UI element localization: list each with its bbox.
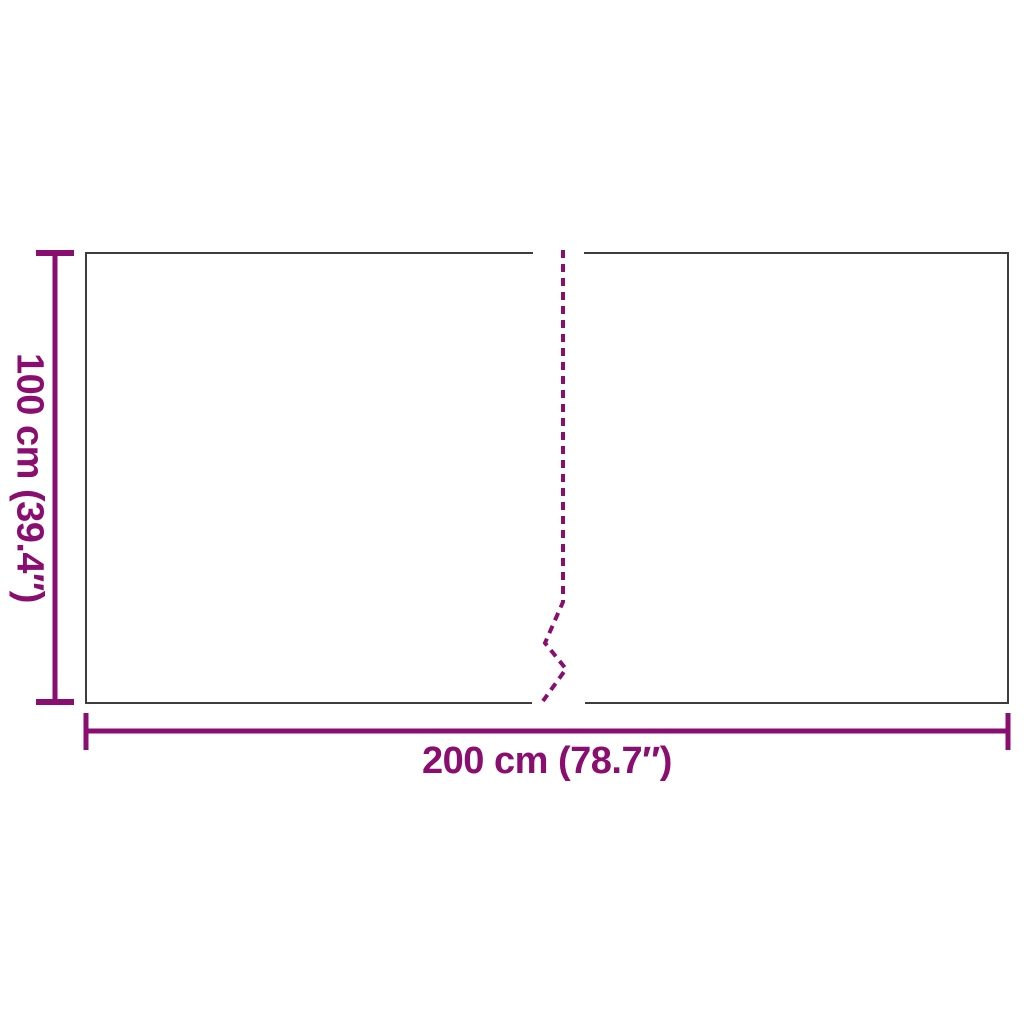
height-dimension-label-box: 100 cm (39.4″) [4,253,54,703]
width-dimension-label: 200 cm (78.7″) [422,740,672,782]
height-dimension-label: 100 cm (39.4″) [8,353,51,603]
fold-line [543,250,566,701]
width-dimension-label-box: 200 cm (78.7″) [86,740,1008,783]
dimension-diagram: 100 cm (39.4″) 200 cm (78.7″) [0,0,1024,1024]
product-outline [86,253,1008,703]
diagram-canvas [0,0,1024,1024]
